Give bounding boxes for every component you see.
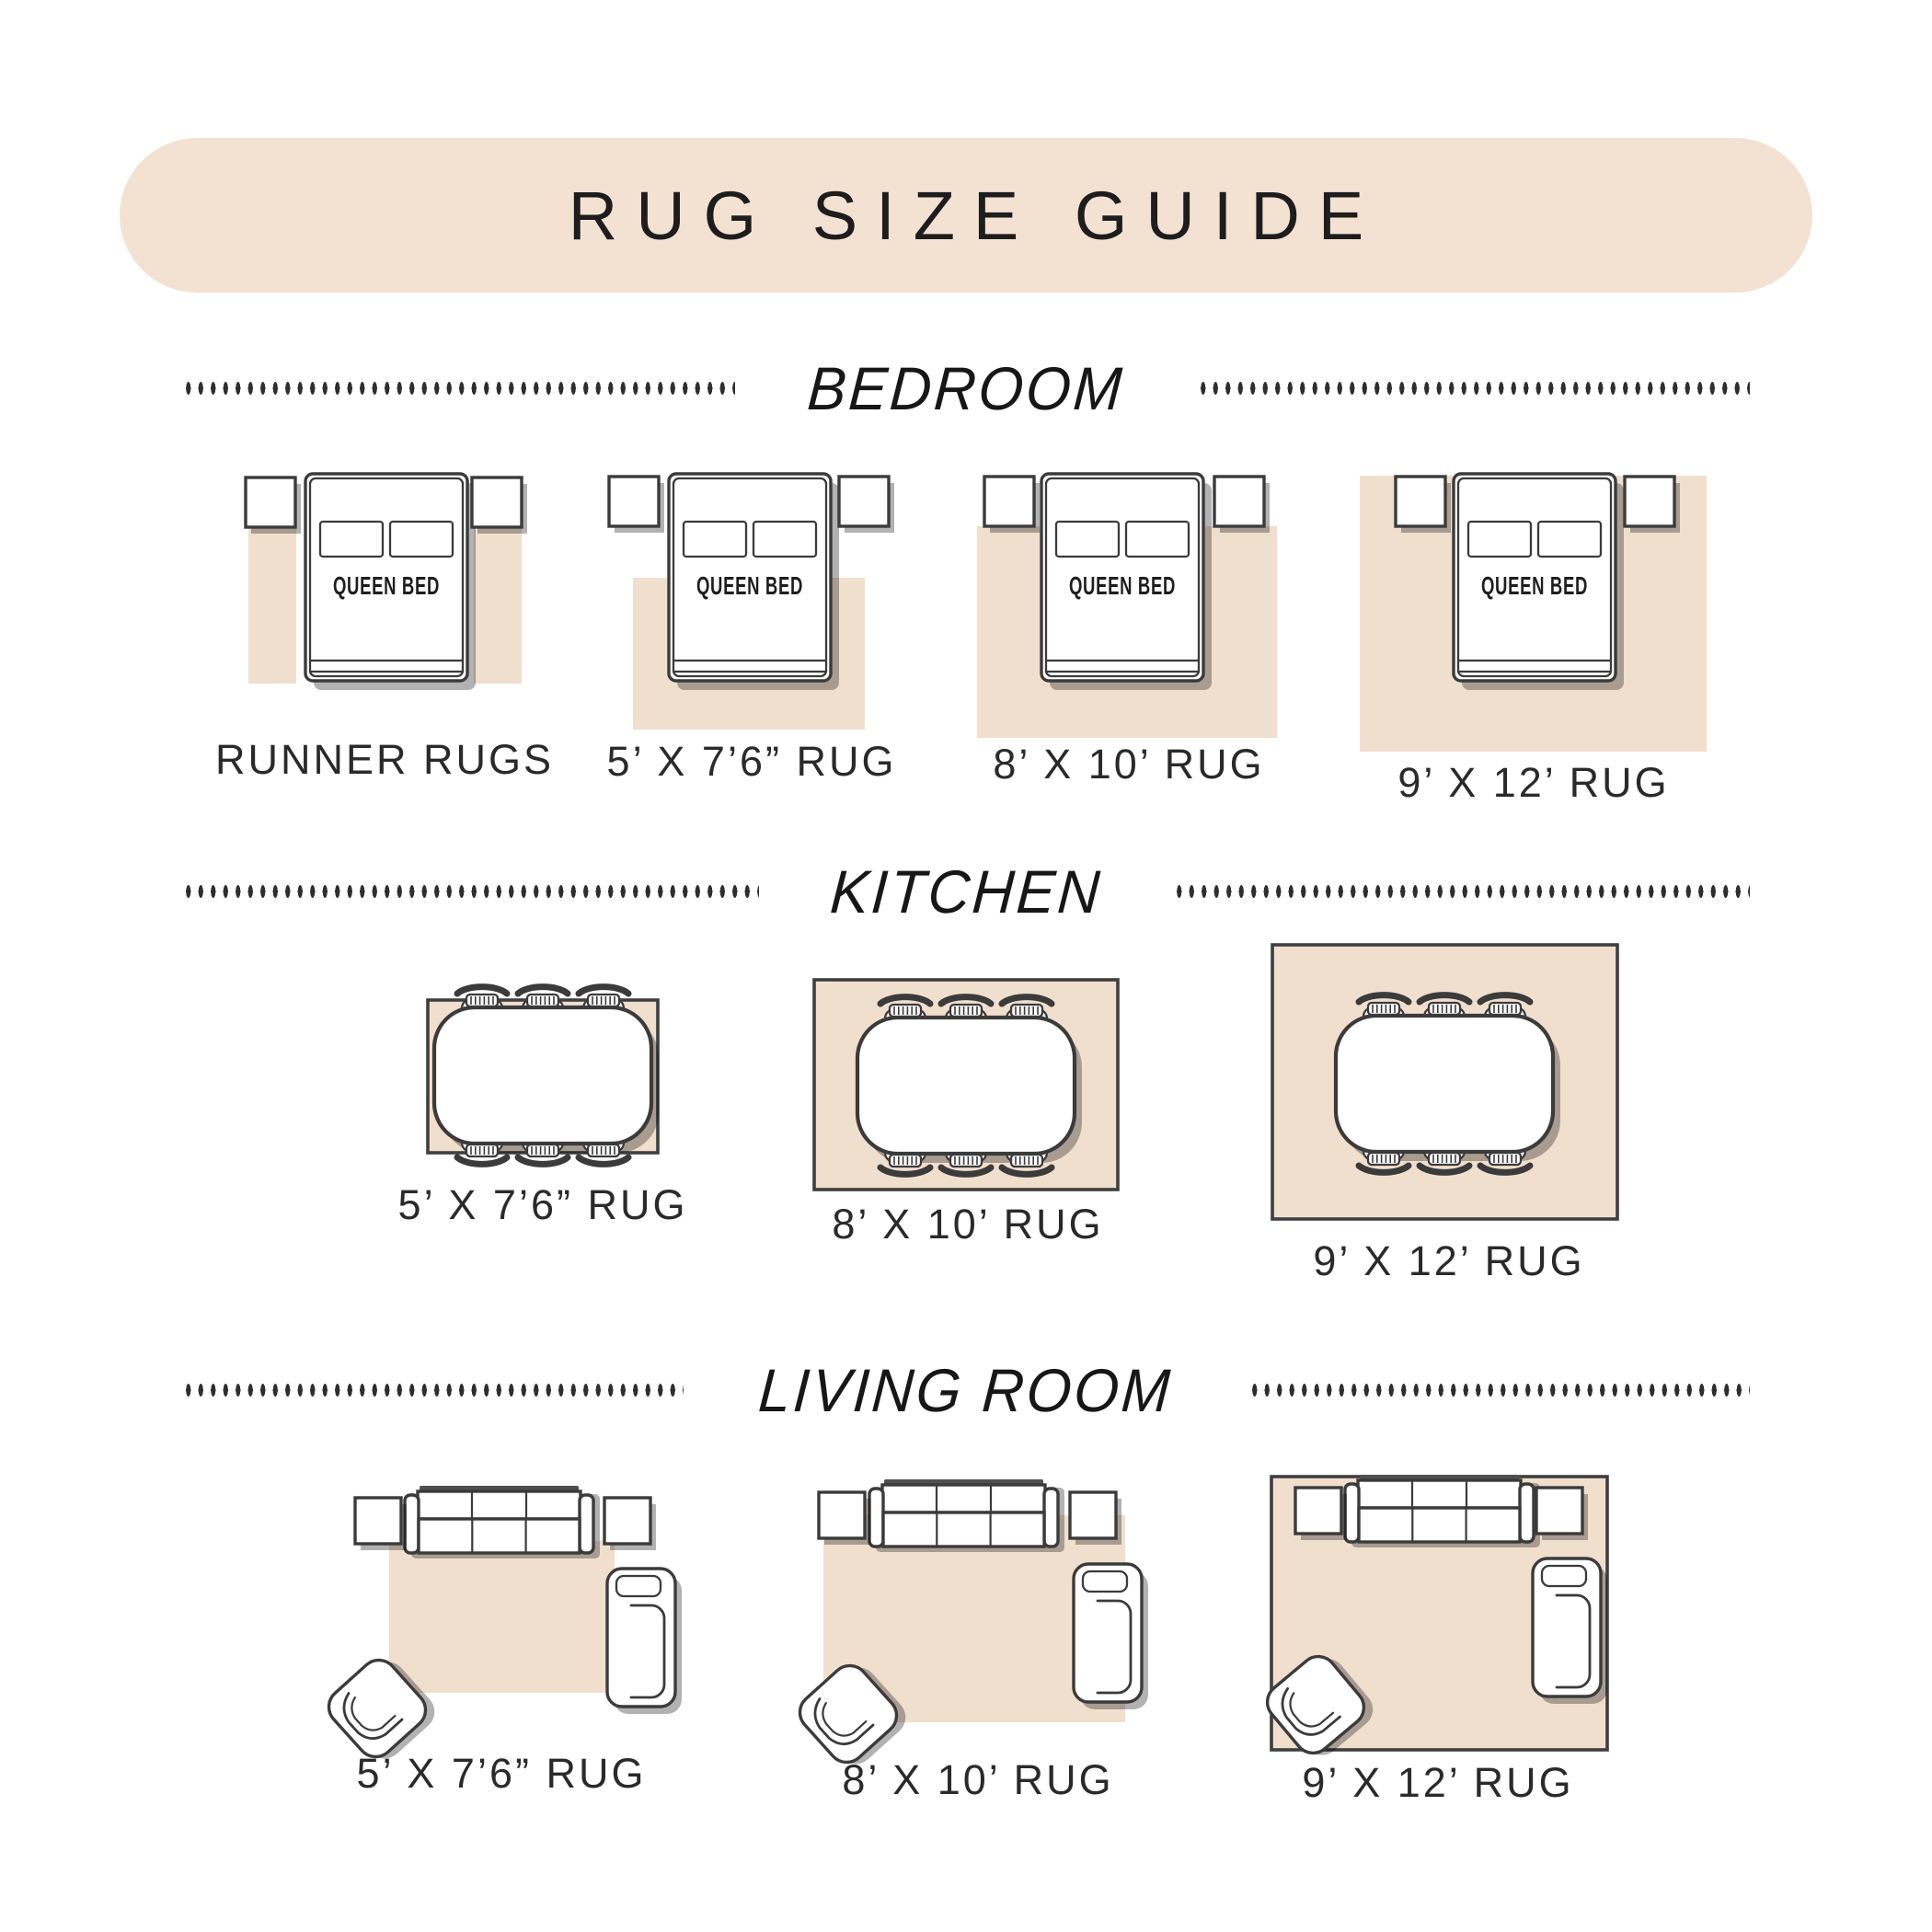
nightstand-left [1396, 477, 1451, 533]
bedroom-diagram-8x10-rug [977, 474, 1277, 738]
chaise-chair [1074, 1564, 1148, 1709]
label-kitchen-8x10: 8’ X 10’ RUG [832, 1201, 1103, 1248]
chaise-chair [1533, 1558, 1607, 1704]
side-table-right [604, 1498, 656, 1550]
nightstand-right [1214, 477, 1270, 533]
nightstand-left [609, 477, 664, 533]
area-rug [389, 1541, 615, 1693]
label-living-room-5x76: 5’ X 7’6” RUG [357, 1750, 647, 1798]
queen-bed [1041, 474, 1212, 690]
kitchen-diagram-5x76-rug [428, 987, 659, 1165]
runner-rug-left [248, 527, 296, 684]
nightstand-right [839, 477, 894, 533]
side-table-left [819, 1492, 870, 1545]
queen-bed [305, 474, 476, 690]
side-table-right [1070, 1492, 1121, 1545]
bedroom-diagram-9x12-rug [1360, 474, 1707, 752]
dining-set [434, 987, 659, 1165]
label-living-room-9x12: 9’ X 12’ RUG [1302, 1759, 1573, 1807]
label-bedroom-5x76: 5’ X 7’6” RUG [607, 738, 897, 786]
bedroom-diagram-runner-rugs [246, 474, 527, 690]
living-room-diagram-9x12-rug [1259, 1475, 1607, 1766]
kitchen-diagram-8x10-rug [814, 980, 1118, 1190]
side-table-right [1536, 1488, 1588, 1540]
queen-bed [1454, 474, 1624, 690]
nightstand-left [246, 477, 301, 534]
label-bedroom-9x12: 9’ X 12’ RUG [1397, 759, 1669, 807]
dining-set [857, 997, 1082, 1175]
kitchen-diagram-9x12-rug [1272, 945, 1617, 1219]
side-table-left [1295, 1488, 1347, 1540]
bedroom-diagram-5x76-rug [609, 474, 894, 730]
sofa [405, 1486, 600, 1558]
living-room-diagram-8x10-rug [792, 1479, 1148, 1776]
diagram-layer: QUEEN BED [0, 0, 1932, 1932]
label-bedroom-8x10: 8’ X 10’ RUG [993, 741, 1264, 788]
sofa [1345, 1475, 1540, 1547]
dining-set [1336, 995, 1560, 1173]
nightstand-right [1625, 477, 1680, 533]
label-bedroom-runner-rugs: RUNNER RUGS [215, 736, 554, 784]
label-kitchen-9x12: 9’ X 12’ RUG [1313, 1237, 1584, 1285]
sofa [869, 1479, 1064, 1552]
living-room-diagram-5x76-rug [321, 1486, 682, 1770]
chaise-chair [607, 1569, 682, 1714]
queen-bed [669, 474, 839, 690]
side-table-left [355, 1498, 407, 1550]
rug-size-guide-poster: RUG SIZE GUIDE BEDROOM KITCHEN LIVING RO… [0, 0, 1932, 1932]
runner-rug-right [474, 527, 522, 684]
nightstand-left [984, 477, 1040, 533]
label-kitchen-5x76: 5’ X 7’6” RUG [398, 1181, 688, 1229]
label-living-room-8x10: 8’ X 10’ RUG [842, 1756, 1113, 1804]
nightstand-right [472, 477, 527, 534]
